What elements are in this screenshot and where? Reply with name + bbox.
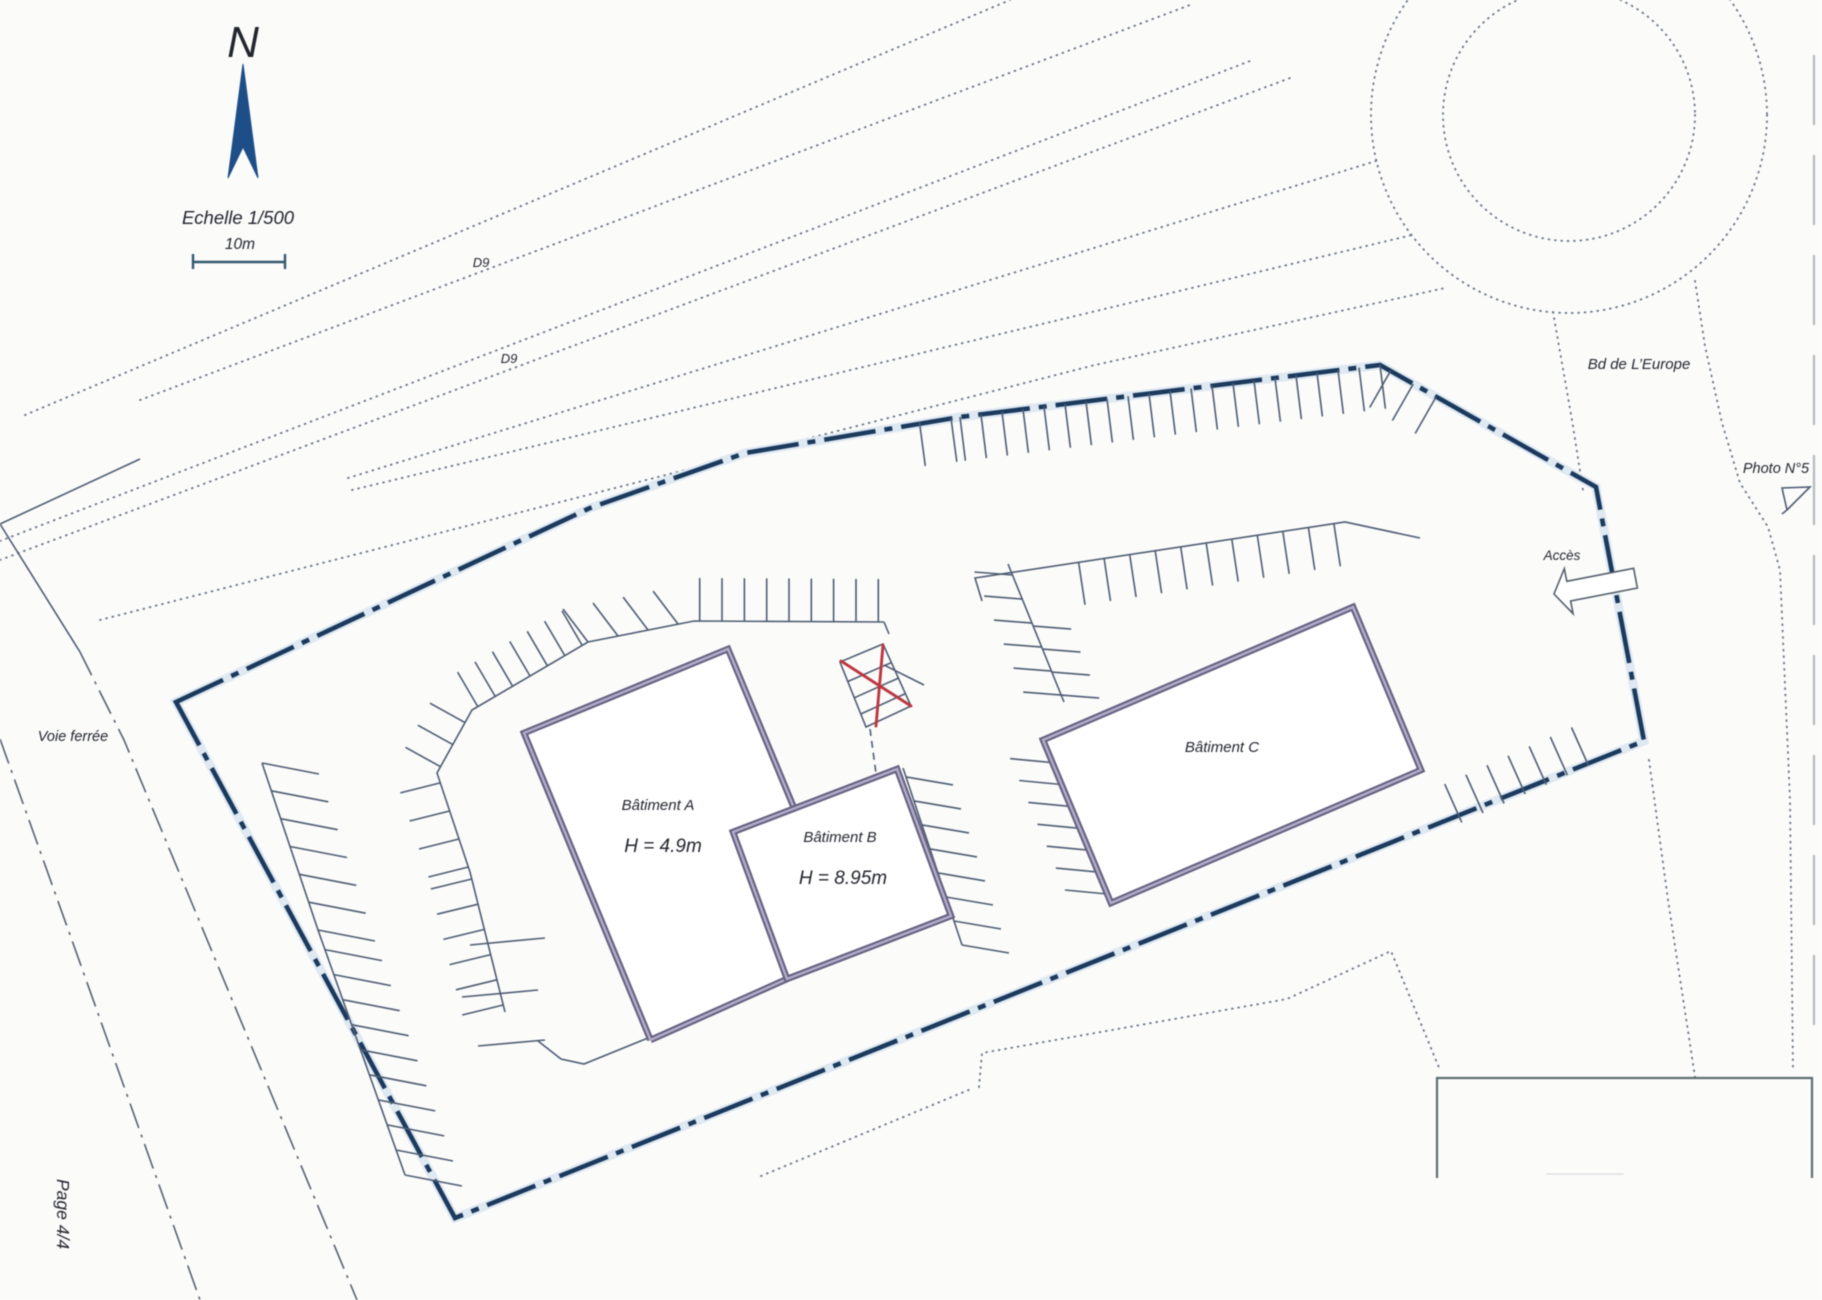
svg-text:H = 4.9m: H = 4.9m: [624, 836, 702, 857]
svg-text:Bâtiment A: Bâtiment A: [622, 797, 695, 814]
svg-text:———————: ———————: [1547, 1168, 1624, 1180]
svg-text:H = 8.95m: H = 8.95m: [799, 868, 887, 889]
svg-text:Voie ferrée: Voie ferrée: [38, 729, 108, 745]
svg-text:Page 4/4: Page 4/4: [53, 1179, 73, 1249]
svg-text:10m: 10m: [225, 236, 255, 253]
svg-text:D9: D9: [501, 351, 518, 366]
svg-text:N: N: [227, 18, 259, 67]
svg-text:Bd de L’Europe: Bd de L’Europe: [1588, 356, 1691, 373]
svg-text:D9: D9: [473, 255, 490, 270]
svg-text:Accès: Accès: [1543, 548, 1581, 563]
svg-text:Bâtiment B: Bâtiment B: [803, 829, 876, 846]
svg-text:Photo N°5: Photo N°5: [1743, 461, 1810, 477]
svg-text:Bâtiment C: Bâtiment C: [1185, 739, 1259, 756]
svg-text:Echelle 1/500: Echelle 1/500: [182, 207, 295, 228]
